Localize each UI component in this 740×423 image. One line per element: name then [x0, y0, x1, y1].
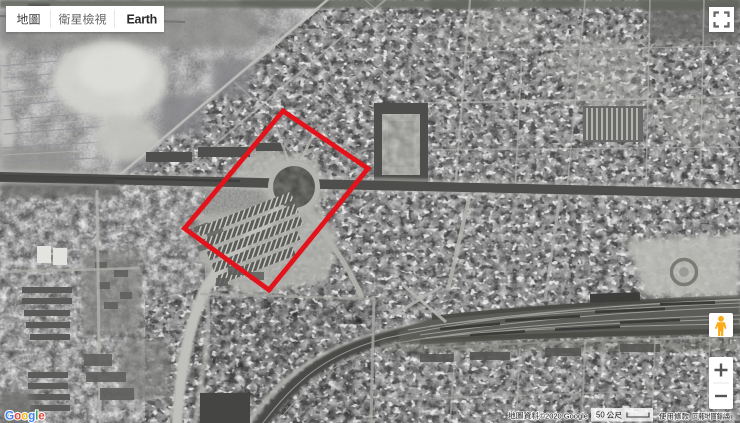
svg-text:G: G [5, 409, 14, 423]
svg-text:Earth: Earth [127, 12, 157, 26]
svg-text:e: e [38, 409, 45, 423]
svg-text:50: 50 [596, 411, 605, 420]
svg-text:©2020 Google: ©2020 Google [540, 412, 588, 421]
